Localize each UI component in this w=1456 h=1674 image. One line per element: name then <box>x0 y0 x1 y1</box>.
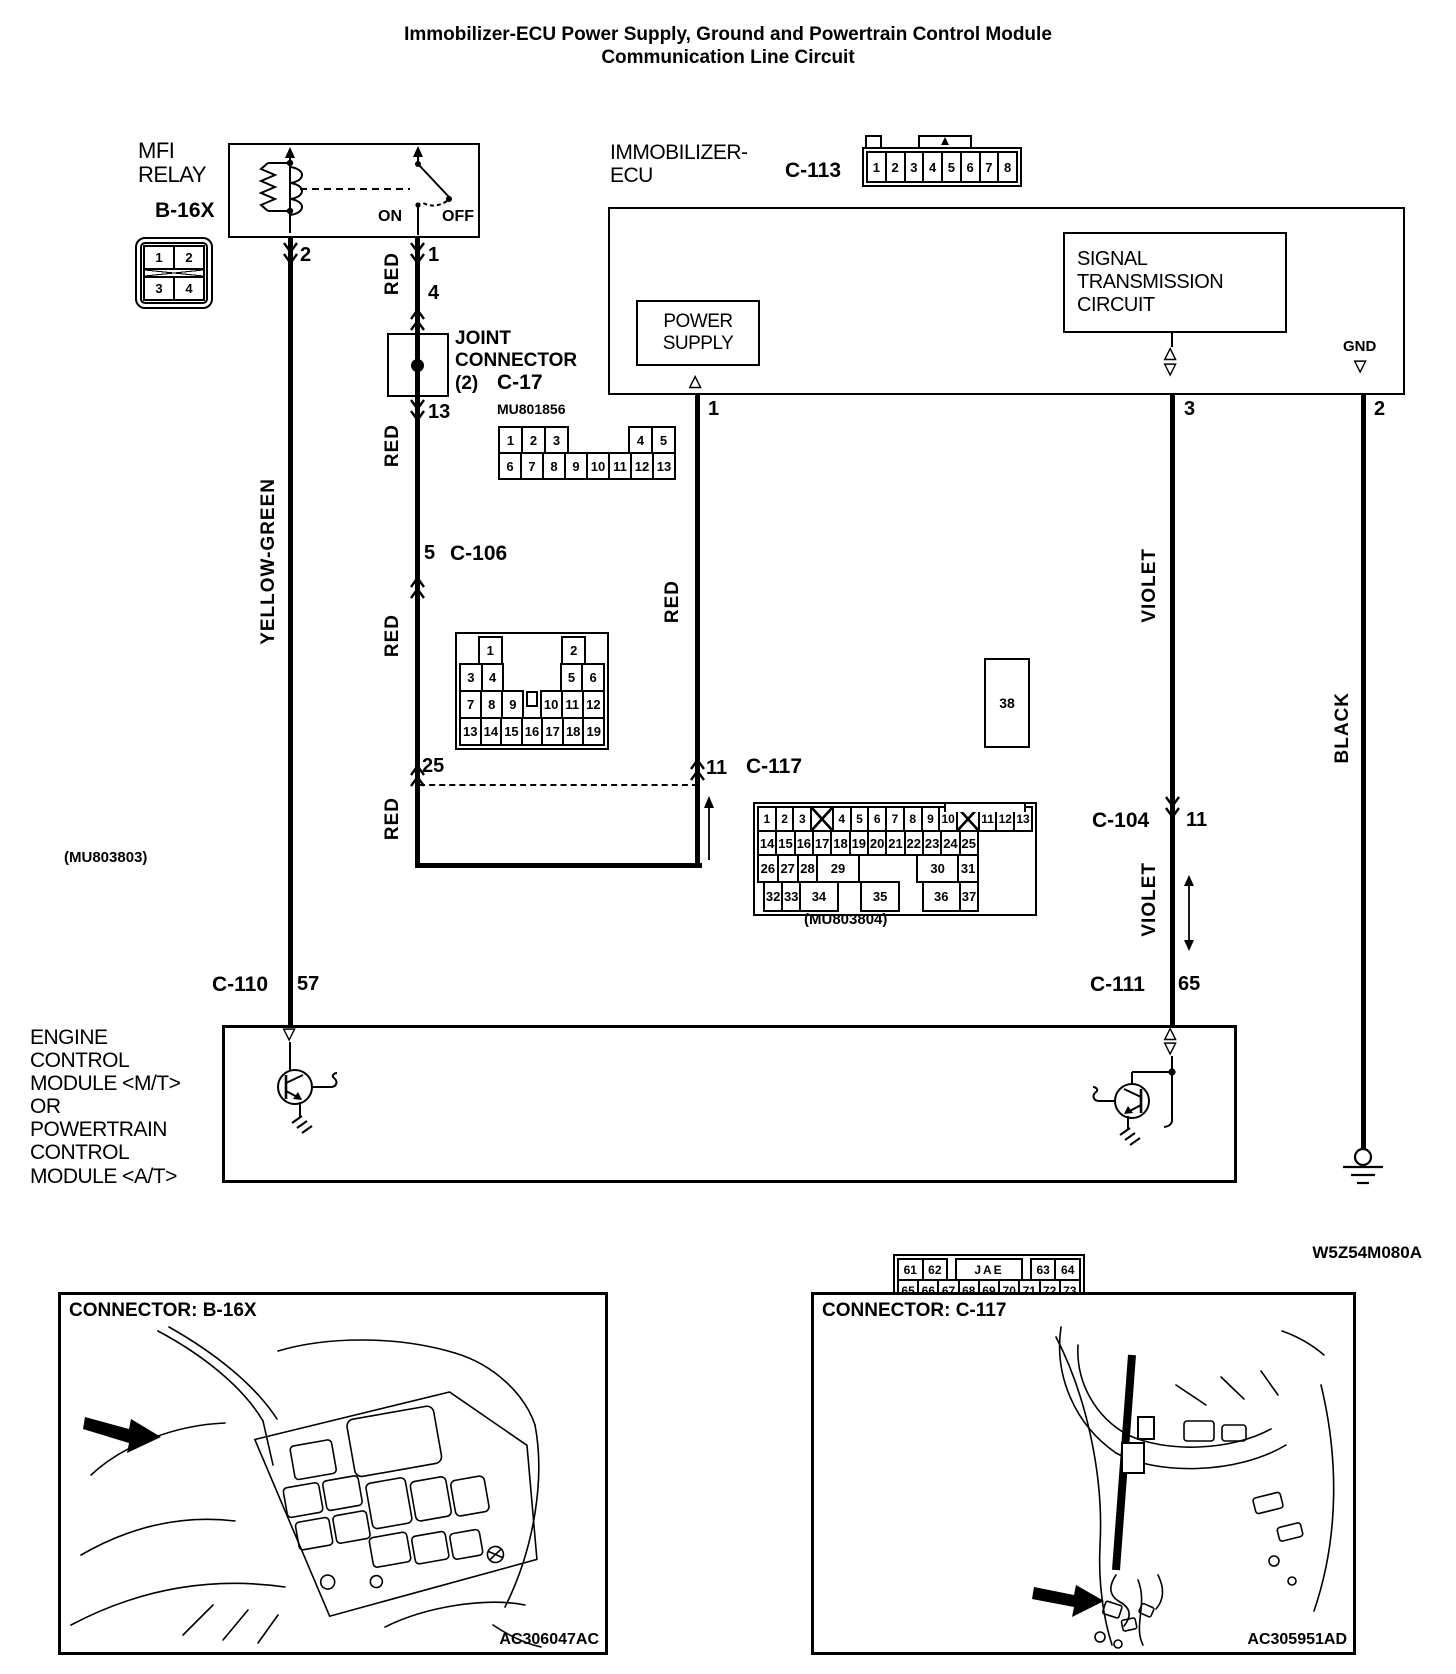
connector-cell: 37 <box>959 881 979 912</box>
connector-cell: 4 <box>922 151 943 183</box>
connector-cell: 5 <box>941 151 962 183</box>
connector-cell: 10 <box>540 690 563 719</box>
relay-connector-id: B-16X <box>155 200 215 222</box>
ecu-label-line2: ECU <box>610 165 748 188</box>
power-supply-line2: SUPPLY <box>663 333 734 355</box>
power-supply-pin-triangle: △ <box>689 374 701 390</box>
wire-crossing-chevron <box>282 241 299 265</box>
connector-cell: 5 <box>560 663 584 692</box>
connector-cell <box>858 854 919 883</box>
connector-cell: 14 <box>480 717 503 746</box>
ecm-label-line: MODULE <A/T> <box>30 1165 180 1188</box>
connector-cell: 33 <box>781 881 801 912</box>
connector-cell: 36 <box>922 881 961 912</box>
connector-cell: 1 <box>143 245 175 270</box>
connector-cell: 17 <box>812 830 832 856</box>
connector-row: 34 <box>143 276 205 301</box>
connector-cell: 19 <box>849 830 869 856</box>
connector-cell: JAE <box>955 1258 1022 1281</box>
ground-symbol <box>1338 1146 1388 1190</box>
signal-direction-arrow-bidirectional <box>1182 874 1196 952</box>
part-number-mu801856: MU801856 <box>497 402 566 417</box>
connector-key-notch <box>526 691 538 707</box>
joint-label-line2: CONNECTOR <box>455 350 577 372</box>
connector-cell <box>584 636 605 665</box>
connector-row: 12345678 <box>866 151 1018 183</box>
ecm-label-line: OR <box>30 1095 180 1118</box>
connector-cell: 27 <box>777 854 799 883</box>
connector-cell: 3 <box>544 426 569 454</box>
connector-cell: 16 <box>521 717 544 746</box>
connector-row: 12 <box>459 636 605 665</box>
connector-cell: 12 <box>582 690 605 719</box>
connector-cell: 31 <box>957 854 979 883</box>
part-number-mu803804: (MU803804) <box>804 912 887 928</box>
connector-b16x-diagram: 1234 <box>135 237 213 309</box>
joint-connector-node-dot <box>411 359 424 372</box>
pin-label-relay-1: 1 <box>428 245 439 266</box>
connector-keying-cross <box>810 806 834 832</box>
signal-direction-arrow-up <box>702 796 716 862</box>
connector-row: 141516171819202122232425 <box>757 830 979 856</box>
connector-cell: 25 <box>959 830 979 856</box>
connector-cell: 12 <box>630 452 654 480</box>
connector-cell: 64 <box>1054 1258 1081 1281</box>
pin-label-joint-4: 4 <box>428 283 439 304</box>
wire-label-black: BLACK <box>1332 692 1354 764</box>
wire-label-yellow-green: YELLOW-GREEN <box>258 478 280 645</box>
relay-on-label: ON <box>378 209 402 226</box>
wire-label-red-3: RED <box>382 614 404 657</box>
connector-c113-diagram: 12345678 <box>862 135 1022 187</box>
ecm-label-line: MODULE <M/T> <box>30 1072 180 1095</box>
signal-box-line2: TRANSMISSION <box>1077 271 1285 294</box>
ecm-label-line: CONTROL <box>30 1049 180 1072</box>
wire-label-red-1: RED <box>382 252 404 295</box>
pin-label-c117-25: 25 <box>422 756 444 777</box>
connector-cell: 2 <box>521 426 546 454</box>
harness-dashed-line <box>419 784 698 786</box>
wire-crossing-chevron <box>409 241 426 265</box>
document-code: W5Z54M080A <box>1302 1244 1422 1262</box>
inset-c117-code: AC305951AD <box>1247 1631 1347 1649</box>
wire-label-violet-2: VIOLET <box>1139 862 1161 937</box>
connector-label-c17: C-17 <box>497 372 543 394</box>
immobilizer-ecu-label: IMMOBILIZER- ECU <box>610 142 748 187</box>
power-supply-box: POWER SUPPLY <box>636 300 760 366</box>
wire-crossing-chevron <box>409 308 426 332</box>
signal-box-line3: CIRCUIT <box>1077 294 1285 317</box>
connector-cell <box>567 426 630 454</box>
connector-row: 6162JAE6364 <box>897 1258 1081 1281</box>
connector-cell: 1 <box>866 151 887 183</box>
connector-cell: 8 <box>542 452 566 480</box>
c104-keying-tab <box>944 802 1026 812</box>
relay-off-label: OFF <box>442 209 474 226</box>
connector-label-c104: C-104 <box>1092 810 1149 832</box>
connector-cell: 9 <box>501 690 524 719</box>
connector-c117-cell-38: 38 <box>984 658 1030 748</box>
pin-label-c111-65: 65 <box>1178 974 1200 995</box>
wire-red-elbow <box>415 863 702 868</box>
connector-cell: 9 <box>564 452 588 480</box>
connector-cell: 8 <box>480 690 503 719</box>
connector-row: 678910111213 <box>498 452 676 480</box>
power-supply-line1: POWER <box>663 311 732 333</box>
connector-cell: 7 <box>979 151 1000 183</box>
connector-label-c117: C-117 <box>746 756 802 778</box>
joint-connector-label: JOINT CONNECTOR <box>455 328 577 373</box>
connector-cell: 5 <box>651 426 676 454</box>
connector-cell: 34 <box>799 881 838 912</box>
connector-cell: 15 <box>775 830 795 856</box>
connector-label-c111: C-111 <box>1090 974 1145 996</box>
signal-pin-triangle-up: △ <box>1164 346 1176 362</box>
connector-cell: 7 <box>520 452 544 480</box>
connector-cell: 1 <box>478 636 503 665</box>
pin-label-ecu-3: 3 <box>1184 399 1195 420</box>
connector-cell: 13 <box>459 717 482 746</box>
connector-cell: 19 <box>582 717 605 746</box>
wire-label-red-2: RED <box>382 424 404 467</box>
signal-pin-triangle-down: ▽ <box>1164 362 1176 378</box>
connector-cell: 21 <box>885 830 905 856</box>
inset-b16x-title: CONNECTOR: B-16X <box>69 1300 257 1322</box>
wire-crossing-chevron <box>409 398 426 422</box>
connector-cell: 26 <box>757 854 779 883</box>
connector-cell: 18 <box>562 717 585 746</box>
wire-red-lower <box>415 397 420 868</box>
signal-box-line1: SIGNAL <box>1077 248 1285 271</box>
title-line-1: Immobilizer-ECU Power Supply, Ground and… <box>0 24 1456 47</box>
ecm-pcm-label: ENGINE CONTROL MODULE <M/T> OR POWERTRAI… <box>30 1026 180 1188</box>
part-number-mu803803: (MU803803) <box>64 850 147 866</box>
connector-row: 12 <box>143 245 205 270</box>
pin-label-c106-5: 5 <box>424 543 435 564</box>
wire-black <box>1361 395 1366 1150</box>
ecu-label-line1: IMMOBILIZER- <box>610 142 748 165</box>
connector-cell: 32 <box>763 881 783 912</box>
connector-cell: 29 <box>816 854 859 883</box>
connector-cell: 6 <box>960 151 981 183</box>
joint-count-label: (2) <box>455 374 478 394</box>
wire-label-red-4: RED <box>382 797 404 840</box>
connector-cell: 4 <box>628 426 653 454</box>
wire-label-violet-1: VIOLET <box>1139 548 1161 623</box>
connector-cell: 6 <box>498 452 522 480</box>
connector-row: 323334353637 <box>757 881 979 912</box>
connector-label-c113: C-113 <box>785 160 841 182</box>
connector-cell: 24 <box>940 830 960 856</box>
connector-row: 789101112 <box>459 690 605 719</box>
ecm-right-pin-triangle-down: ▽ <box>1164 1041 1176 1057</box>
connector-cell: 2 <box>561 636 586 665</box>
ecm-left-pin-triangle: ▽ <box>283 1027 295 1043</box>
ecm-right-transistor-drawing <box>1080 1056 1210 1166</box>
connector-cell: 22 <box>904 830 924 856</box>
connector-cell: 17 <box>541 717 564 746</box>
wire-red-to-ecu <box>695 395 700 868</box>
connector-cell <box>502 663 561 692</box>
inset-c117-photo-sketch <box>816 1325 1351 1651</box>
relay-internals-drawing <box>230 145 477 235</box>
connector-cell: 20 <box>867 830 887 856</box>
connector-row: 12345 <box>498 426 676 454</box>
wire-crossing-chevron <box>1164 795 1181 819</box>
connector-cell: 2 <box>885 151 906 183</box>
connector-c17-grid: 12345678910111213 <box>498 426 676 480</box>
connector-cell: 3 <box>459 663 483 692</box>
pin-label-ecu-2: 2 <box>1374 399 1385 420</box>
wire-crossing-chevron <box>689 758 706 782</box>
connector-cell: 3 <box>143 276 175 301</box>
c117-pin-38: 38 <box>999 695 1015 711</box>
connector-cell: 62 <box>922 1258 949 1281</box>
pin-label-c104-11: 11 <box>1186 810 1207 831</box>
inset-connector-b16x: CONNECTOR: B-16X <box>58 1292 608 1655</box>
wire-violet <box>1170 395 1175 1025</box>
pin-label-ecu-1: 1 <box>708 399 719 420</box>
connector-cell <box>501 636 564 665</box>
wire-crossing-chevron <box>409 576 426 600</box>
connector-cell: 28 <box>797 854 819 883</box>
connector-cell: 13 <box>652 452 676 480</box>
gnd-pin-triangle: ▽ <box>1354 359 1366 375</box>
inset-b16x-pointer-arrow <box>83 1417 161 1453</box>
connector-cell: 6 <box>581 663 605 692</box>
connector-cell: 18 <box>830 830 850 856</box>
wire-label-red-5: RED <box>662 580 684 623</box>
connector-row: 262728293031 <box>757 854 979 883</box>
connector-label-c110: C-110 <box>212 974 268 996</box>
connector-c117-grid: 1234567891011121314151617181920212223242… <box>753 802 1037 916</box>
connector-cell <box>459 636 480 665</box>
pin-label-joint-13: 13 <box>428 402 450 423</box>
connector-cell: 1 <box>498 426 523 454</box>
ecm-label-line: ENGINE <box>30 1026 180 1049</box>
connector-cell: 10 <box>586 452 610 480</box>
ecm-left-transistor-drawing <box>240 1042 360 1142</box>
connector-cell: 30 <box>916 854 959 883</box>
connector-cell: 15 <box>500 717 523 746</box>
wiring-diagram-page: Immobilizer-ECU Power Supply, Ground and… <box>0 0 1456 1674</box>
c113-keying-mark-icon <box>940 137 950 146</box>
connector-cell: 2 <box>173 245 205 270</box>
inset-b16x-code: AC306047AC <box>499 1631 599 1649</box>
wire-yellow-green <box>288 238 293 1025</box>
inset-connector-c117: CONNECTOR: C-117 <box>811 1292 1356 1655</box>
connector-label-c106: C-106 <box>450 543 507 565</box>
connector-cell: 11 <box>561 690 584 719</box>
connector-row: 13141516171819 <box>459 717 605 746</box>
connector-cell <box>898 881 924 912</box>
diagram-title: Immobilizer-ECU Power Supply, Ground and… <box>0 24 1456 70</box>
connector-c113-grid: 12345678 <box>862 147 1022 187</box>
connector-cell: 4 <box>173 276 205 301</box>
inset-c117-title: CONNECTOR: C-117 <box>822 1300 1006 1322</box>
connector-cell: 7 <box>459 690 482 719</box>
connector-c106-grid: 12345678910111213141516171819 <box>455 632 609 750</box>
connector-cell: 11 <box>608 452 632 480</box>
connector-cell: 16 <box>794 830 814 856</box>
ecm-label-line: CONTROL <box>30 1141 180 1164</box>
mfi-relay-label: MFI RELAY <box>138 139 206 187</box>
connector-cell <box>837 881 863 912</box>
connector-cell: 61 <box>897 1258 924 1281</box>
pin-label-c117-11: 11 <box>706 758 727 779</box>
pin-label-relay-2: 2 <box>300 245 311 266</box>
inset-c117-pointer-arrow <box>1032 1585 1104 1617</box>
pin-label-c110-57: 57 <box>297 974 319 995</box>
connector-b16x-grid: 1234 <box>143 245 205 301</box>
connector-cell: 63 <box>1030 1258 1057 1281</box>
connector-row: 3456 <box>459 663 605 692</box>
connector-cell: 8 <box>997 151 1018 183</box>
inset-b16x-photo-sketch <box>63 1325 603 1651</box>
connector-cell: 23 <box>922 830 942 856</box>
signal-transmission-box: SIGNAL TRANSMISSION CIRCUIT <box>1063 232 1287 333</box>
connector-cell: 14 <box>757 830 777 856</box>
connector-cell: 3 <box>904 151 925 183</box>
joint-label-line1: JOINT <box>455 328 577 350</box>
ecm-label-line: POWERTRAIN <box>30 1118 180 1141</box>
mfi-label-line2: RELAY <box>138 163 206 187</box>
title-line-2: Communication Line Circuit <box>0 47 1456 70</box>
connector-cell: 4 <box>481 663 505 692</box>
connector-cell: 35 <box>860 881 899 912</box>
mfi-label-line1: MFI <box>138 139 206 163</box>
gnd-label: GND <box>1343 339 1376 355</box>
